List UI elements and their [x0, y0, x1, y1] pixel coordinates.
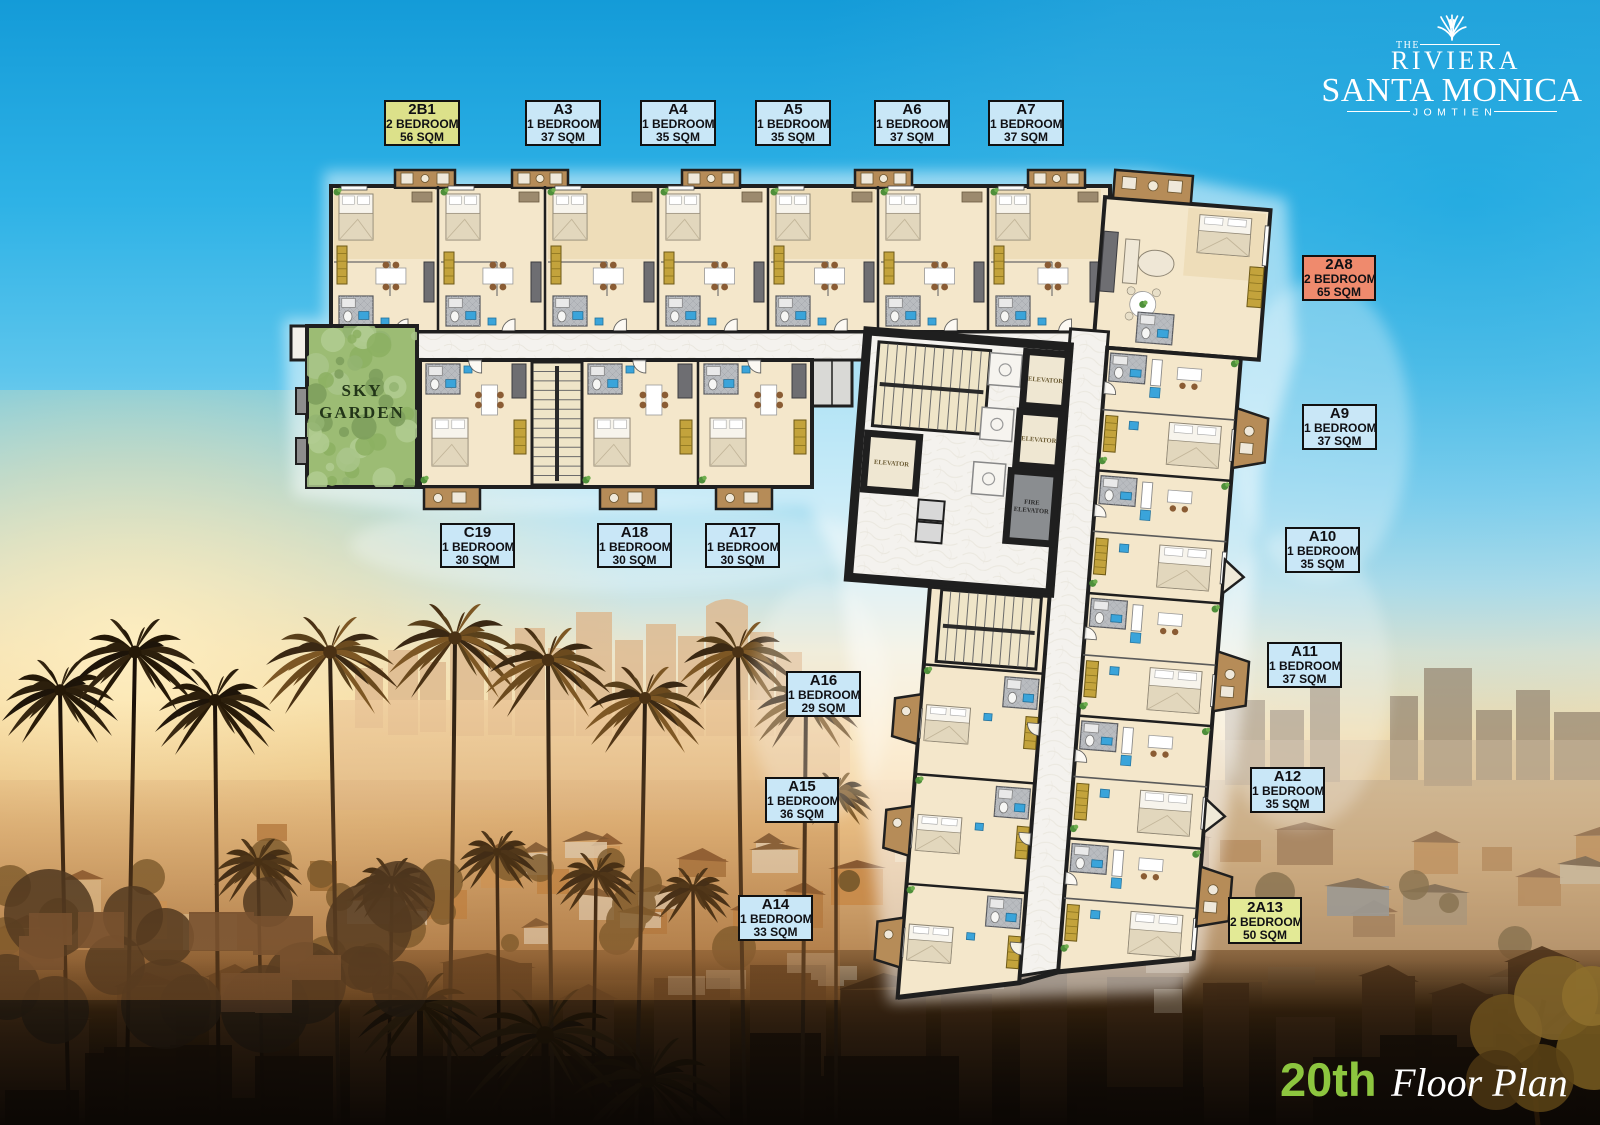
svg-text:SKY: SKY	[342, 381, 383, 400]
svg-text:GARDEN: GARDEN	[319, 403, 405, 422]
svg-text:RIVIERA: RIVIERA	[1391, 46, 1521, 75]
svg-text:JOMTIEN: JOMTIEN	[1413, 107, 1498, 119]
svg-text:FIRE: FIRE	[1024, 499, 1040, 507]
svg-text:SANTA MONICA: SANTA MONICA	[1321, 72, 1582, 109]
